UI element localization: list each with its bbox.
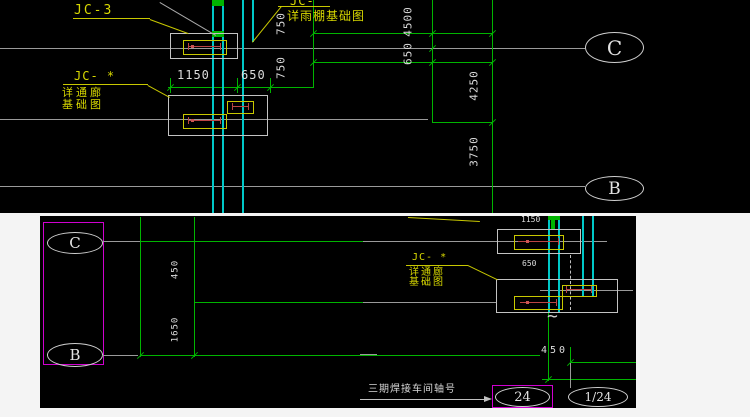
ibeam-end [566, 286, 567, 293]
grid-bubble-b: B [47, 343, 103, 367]
column-point [191, 119, 194, 122]
dim-text-650-small: 650 [522, 260, 536, 268]
leader-line-yellow [150, 19, 189, 34]
dim-line-horizontal [570, 362, 636, 363]
wall-hatch-fill [212, 0, 224, 6]
bottom-drawing-panel: C B 450 1650 1150 650 ~ 450 [40, 216, 636, 408]
column-center-line-green [194, 302, 363, 303]
label-jc3: JC-3 [74, 4, 113, 17]
wall-line-cyan [252, 0, 254, 42]
ibeam-end [188, 43, 189, 50]
ibeam-end [591, 286, 592, 293]
label-jc-top: JC- [290, 0, 315, 7]
label-jc-star-note1: 详通廊 [62, 87, 104, 98]
grid-letter-c: C [69, 234, 80, 252]
dim-text-1150: 1150 [177, 69, 210, 81]
grid-bubble-c: C [585, 32, 644, 63]
leader-line-yellow [468, 265, 498, 280]
grid-letter-b: B [69, 346, 80, 364]
leader-line-gray [159, 2, 216, 36]
label-jc-star: JC- * [74, 70, 115, 82]
ibeam-symbol [232, 106, 249, 107]
caption-arrow-line [360, 399, 484, 400]
column-center-line [363, 302, 496, 303]
grid-line-vertical [194, 217, 195, 357]
ibeam-symbol [566, 289, 592, 290]
leader-underline [406, 265, 468, 266]
grid-line-vertical [140, 217, 141, 357]
axis-line-b [0, 186, 585, 187]
dim-text-1150-small: 1150 [521, 216, 540, 224]
label-canopy-note: 详雨棚基础图 [287, 10, 365, 22]
ibeam-end [248, 103, 249, 110]
ibeam-end [556, 299, 557, 306]
ibeam-symbol [518, 241, 559, 242]
leader-line-yellow [148, 85, 170, 98]
ibeam-end [558, 238, 559, 245]
dim-text-4500: 4500 [403, 5, 414, 39]
dim-line-horizontal [140, 355, 540, 356]
column-point [191, 45, 194, 48]
pile-cap-outline [514, 235, 564, 250]
axis-line-b [102, 355, 138, 356]
ibeam-end [188, 117, 189, 124]
break-symbol: ~ [547, 308, 559, 326]
caption-text: 三期焊接车间轴号 [368, 385, 456, 395]
axis-line-c-green [140, 241, 363, 242]
dim-text-4250: 4250 [469, 69, 480, 103]
dim-text-750-upper: 750 [276, 7, 287, 41]
grid-bubble-b: B [585, 176, 644, 201]
dim-text-650: 650 [241, 69, 266, 81]
leader-underline [63, 84, 148, 85]
grid-bubble-c: C [47, 232, 103, 254]
dim-line-horizontal [432, 122, 492, 123]
leader-line-yellow [408, 217, 480, 222]
axis-line-c [102, 241, 140, 242]
label-jc-note2: 基础图 [409, 278, 445, 288]
dim-text-3750: 3750 [469, 135, 480, 169]
axis-line-c [0, 48, 585, 49]
top-drawing-panel: JC-3 JC- * 详通廊 基础图 JC- 详雨棚基础图 1150 650 7… [0, 0, 750, 213]
caption-arrowhead [484, 396, 492, 402]
grid-bubble-24: 24 [495, 387, 550, 407]
dim-line-horizontal [542, 379, 636, 380]
dim-line-horizontal [168, 87, 313, 88]
stray-segment [360, 354, 377, 355]
extension-line [570, 363, 571, 388]
grid-number-1-24: 1/24 [585, 390, 612, 404]
column-point [526, 301, 529, 304]
wall-hatch-fill [551, 218, 555, 229]
leader-underline [73, 18, 150, 19]
ibeam-end [220, 117, 221, 124]
grid-number-24: 24 [514, 390, 531, 405]
dim-text-1650: 1650 [172, 317, 181, 343]
grid-letter-c: C [607, 36, 622, 60]
ibeam-end [232, 103, 233, 110]
column-point [526, 240, 529, 243]
label-jc-star: JC- * [412, 253, 447, 263]
dim-text-450-left: 450 [172, 257, 181, 283]
dim-text-650-right: 650 [403, 37, 414, 71]
grid-letter-b: B [608, 179, 621, 199]
grid-bubble-1-24: 1/24 [568, 387, 628, 407]
dim-text-750-lower: 750 [276, 51, 287, 85]
dim-text-450: 450 [541, 346, 568, 356]
label-jc-star-note2: 基础图 [62, 99, 104, 110]
ibeam-end [220, 43, 221, 50]
